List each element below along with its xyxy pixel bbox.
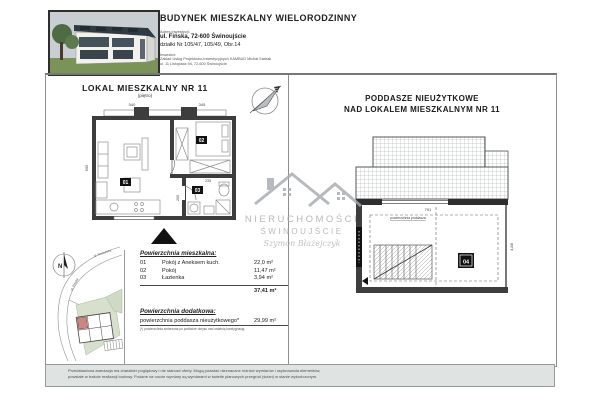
attic-stairs: [374, 245, 432, 279]
additional-area-name: powierzchnia poddasza nieużytkowego*: [140, 318, 254, 324]
room-number-labels: 01 02 03: [120, 136, 207, 194]
site-plan: N ul. Fińska ul. Norweska: [46, 243, 124, 363]
svg-text:03: 03: [195, 188, 201, 194]
svg-text:N: N: [58, 264, 62, 270]
room-area: 11,47 m²: [254, 268, 288, 274]
address-street: ul. Fińska, 72-600 Świnoujście: [160, 34, 246, 40]
room-name: Pokój: [162, 268, 254, 274]
svg-text:02: 02: [199, 138, 205, 144]
document-title: BUDYNEK MIESZKALNY WIELORODZINNY: [160, 13, 357, 23]
room-no: 02: [140, 268, 162, 274]
highlighted-unit: [77, 317, 87, 329]
building-render-image: [48, 10, 160, 76]
room-area: 3,94 m²: [254, 275, 288, 281]
plan-furniture: [96, 122, 230, 214]
svg-text:200: 200: [176, 195, 180, 201]
apartment-floor-plan: 01 02 03 540 345 605 235 200: [84, 102, 246, 228]
room-name: Łazienka: [162, 275, 254, 281]
svg-text:605: 605: [84, 164, 89, 171]
room-no: 01: [140, 260, 162, 266]
svg-text:01: 01: [123, 180, 129, 186]
additional-area-row: powierzchnia poddasza nieużytkowego* 29,…: [140, 318, 288, 326]
svg-text:04: 04: [463, 260, 470, 266]
table-row: 02 Pokój 11,47 m²: [140, 268, 288, 274]
table-row: 03 Łazienka 3,94 m²: [140, 275, 288, 281]
additional-area-value: 29,99 m²: [254, 318, 288, 324]
room-area: 22,0 m²: [254, 260, 288, 266]
attic-title-line1: PODDASZE NIEUŻYTKOWE: [290, 94, 554, 103]
north-arrow-icon: [244, 79, 286, 121]
attic-floor-plan: 04 powierzchnia poddasza 791 4,88: [348, 127, 516, 301]
area-footnote: (*) powierzchnia zmierzona po podłodze o…: [140, 327, 288, 331]
total-area-value: 37,41 m²: [254, 288, 288, 294]
svg-text:ul. Fińska: ul. Fińska: [69, 277, 79, 291]
siteplan-divider: [124, 250, 125, 364]
svg-text:791: 791: [425, 207, 432, 212]
attic-roof-hatch: [356, 137, 508, 199]
table-row: 01 Pokój z Aneksem kuch. 22,0 m²: [140, 260, 288, 266]
attic-title-line2: NAD LOKALEM MIESZKALNYM NR 11: [290, 105, 554, 114]
apartment-plan-subtitle: (piętro): [45, 93, 245, 98]
living-area-section-title: Powierzchnia mieszkalna:: [140, 250, 288, 257]
svg-text:4,88: 4,88: [509, 242, 514, 251]
entrance-marker: [151, 228, 177, 244]
svg-text:powierzchnia poddasza: powierzchnia poddasza: [390, 216, 426, 220]
document-sheet: BUDYNEK MIESZKALNY WIELORODZINNY Adres i…: [0, 0, 600, 400]
room-name: Pokój z Aneksem kuch.: [162, 260, 254, 266]
investor-name: Zakład Usług Projektowo-Inwestycyjnych K…: [160, 57, 271, 61]
room-no: 03: [140, 275, 162, 281]
svg-text:540: 540: [129, 102, 136, 107]
additional-area-section-title: Powierzchnia dodatkowa:: [140, 308, 288, 315]
investor-address: ul. 11 Listopada 94, 72-600 Świnoujście: [160, 62, 227, 66]
panel-divider: [288, 75, 289, 364]
areas-table: Powierzchnia mieszkalna: 01 Pokój z Anek…: [140, 250, 288, 331]
disclaimer-line2: powstałe w trakcie realizacji budowy. Po…: [68, 374, 317, 379]
address-plots: działki Nr 105/47, 105/49, Obr.14: [160, 42, 240, 48]
svg-text:ul. Norweska: ul. Norweska: [93, 248, 112, 258]
apartment-plan-title: LOKAL MIESZKALNY NR 11: [45, 83, 245, 93]
disclaimer-line1: Przedstawiona aranżacja ma charakter pog…: [68, 368, 320, 373]
svg-text:345: 345: [199, 102, 206, 107]
site-north-arrow-icon: N: [53, 252, 75, 278]
svg-text:235: 235: [205, 179, 211, 183]
attic-room-label: 04: [458, 253, 474, 268]
total-area-row: 37,41 m²: [140, 288, 288, 294]
